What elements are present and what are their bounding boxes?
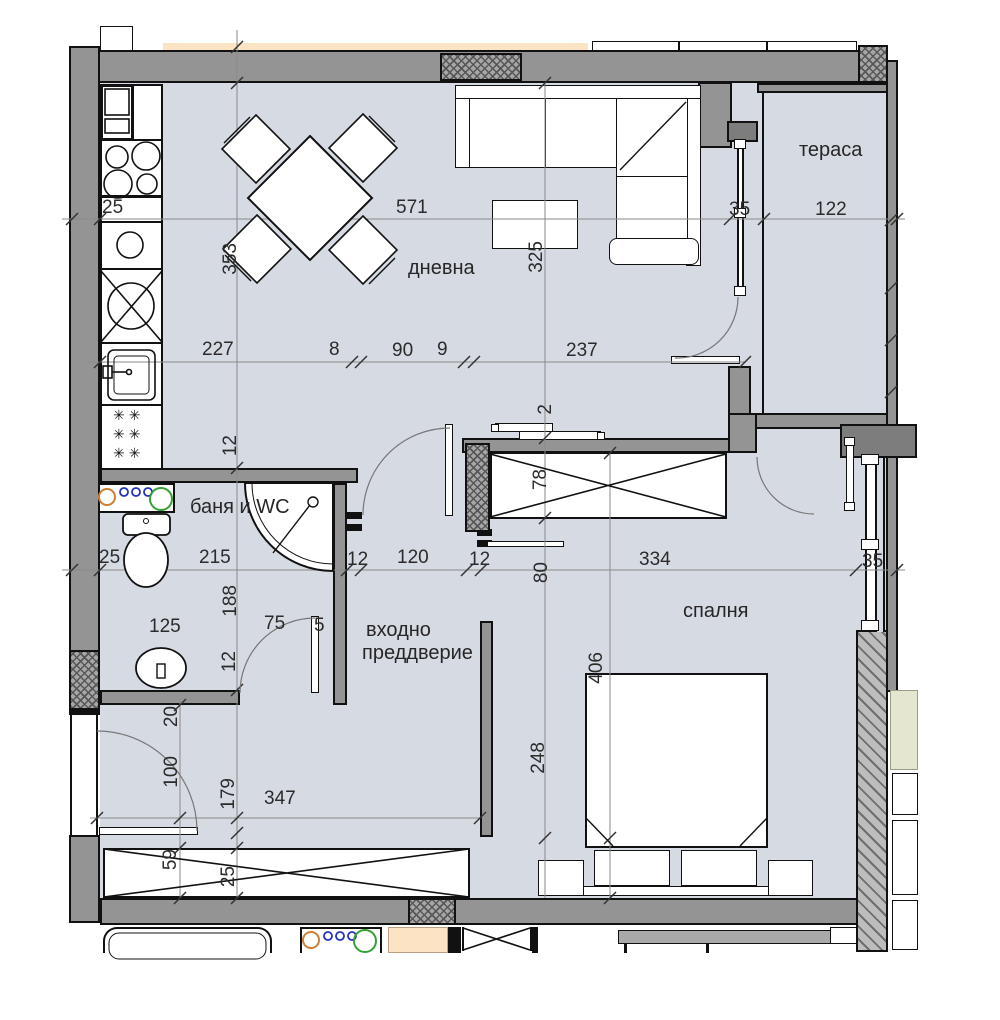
wall-bedroom-top	[462, 438, 757, 453]
lower-unit-wall	[532, 927, 538, 953]
dim-label: 12	[347, 550, 368, 569]
room-label-hall-2: преддверие	[362, 643, 473, 663]
room-label-living: дневна	[408, 258, 475, 278]
wall-left-upper	[69, 46, 100, 653]
slide-end-square	[597, 432, 605, 440]
bath-vanity	[98, 483, 175, 513]
dim-label: 59	[161, 849, 180, 870]
entry-frame-right	[96, 715, 98, 835]
dim-label: 215	[199, 548, 231, 567]
terrace-window-post	[734, 139, 746, 149]
hall-door-stop	[345, 524, 362, 531]
dim-label: 406	[587, 652, 606, 684]
bedroom-window-post	[861, 620, 879, 631]
wall-top-crosshatch	[440, 53, 522, 81]
wall-terrace-right	[886, 60, 898, 692]
dim-label: 325	[527, 241, 546, 273]
window-open-leaf	[846, 441, 854, 509]
dim-label: 120	[397, 548, 429, 567]
dim-label: 8	[329, 340, 340, 359]
bedroom-window-post	[861, 539, 879, 550]
dim-label: 188	[221, 585, 240, 617]
closet-crosshatch-pier	[465, 443, 490, 532]
wall-bottom	[100, 898, 860, 925]
dim-label: 571	[396, 198, 428, 217]
dim-label: 75	[264, 614, 285, 633]
wall-left-lower	[69, 835, 100, 923]
dim-label: 90	[392, 341, 413, 360]
counter-divider	[100, 268, 163, 270]
counter-divider	[100, 342, 163, 344]
dim-label: 12	[469, 550, 490, 569]
lower-unit-window	[830, 927, 857, 944]
terrace-door-pier	[728, 366, 751, 415]
lower-unit-divider	[624, 944, 627, 953]
dim-label: 2	[536, 404, 555, 415]
room-label-bath: баня и WC	[190, 497, 290, 517]
dim-label: 9	[437, 340, 448, 359]
right-unit-furniture	[892, 773, 918, 815]
terrace-door-leaf	[671, 356, 740, 364]
closet-sliding-door	[519, 431, 601, 440]
dim-label: 122	[815, 200, 847, 219]
bed-pillow	[681, 850, 757, 886]
hall-door-leaf	[445, 424, 453, 516]
sofa-seat	[545, 98, 618, 168]
lower-unit-bathtub	[103, 927, 272, 953]
bedroom-window-post	[861, 454, 879, 465]
fridge	[100, 84, 134, 141]
dim-label: 25	[102, 198, 123, 217]
lower-unit-floor	[388, 927, 448, 953]
dim-label: 5	[314, 616, 325, 635]
wall-connector	[728, 413, 757, 453]
dim-label: 25	[99, 548, 120, 567]
wall-terrace-top	[757, 83, 888, 93]
entry-jamb-top	[69, 708, 100, 715]
wall-bath-bottom	[100, 690, 240, 705]
radiator-icon: ✳✳✳✳✳✳	[113, 406, 144, 463]
window-leaf-end	[844, 502, 855, 511]
closet-box	[490, 452, 727, 519]
dim-label: 248	[529, 742, 548, 774]
wall-bottom-crosshatch	[408, 898, 456, 925]
right-unit-floor	[890, 690, 918, 770]
dim-label: 80	[532, 562, 551, 583]
dim-label: 25	[219, 866, 238, 887]
hall-door-stop	[345, 512, 362, 519]
wall-bedroom-left	[480, 621, 493, 837]
floor-plan: ✳✳✳✳✳✳	[0, 0, 1000, 1020]
dim-label: 334	[639, 550, 671, 569]
sofa-seat	[469, 98, 547, 168]
right-unit-furniture	[892, 900, 918, 950]
room-label-terrace: тераса	[799, 140, 862, 160]
lower-unit-vanity	[300, 927, 382, 953]
terrace-window-post	[734, 286, 746, 296]
hall-wardrobe	[103, 848, 470, 898]
room-label-bedroom: спалня	[683, 601, 749, 621]
dim-label: 12	[220, 651, 239, 672]
bedroom-window-sill-line	[883, 458, 885, 632]
dim-label: 35	[729, 200, 750, 219]
dim-label: 353	[221, 243, 240, 275]
bed-mattress	[585, 673, 768, 848]
dim-label: 100	[162, 756, 181, 788]
wall-left-crosshatch	[69, 650, 100, 715]
bed-pillow	[594, 850, 670, 886]
dim-label: 35	[862, 552, 883, 571]
right-unit-furniture	[892, 820, 918, 895]
counter-divider	[100, 221, 163, 223]
lower-unit-room	[462, 927, 532, 951]
wall-bath-top	[100, 468, 358, 483]
dim-label: 227	[202, 340, 234, 359]
dim-label: 347	[264, 789, 296, 808]
window-leaf-end	[844, 437, 855, 446]
sofa-chaise	[609, 238, 699, 265]
entry-door-leaf	[99, 827, 198, 835]
nightstand	[538, 860, 584, 896]
sofa-seat	[616, 176, 688, 240]
wall-topright-crosshatch	[858, 45, 888, 83]
terrace-floor-edge	[762, 92, 764, 414]
dim-label: 125	[149, 617, 181, 636]
entry-frame-left	[70, 715, 72, 835]
sofa-corner-seat	[616, 98, 688, 178]
dim-label: 12	[221, 435, 240, 456]
dim-label: 237	[566, 341, 598, 360]
slide-end-square	[491, 424, 499, 432]
lower-unit-wall	[448, 927, 461, 953]
lower-unit-wall-band	[618, 930, 858, 944]
dim-label: 78	[531, 469, 550, 490]
closet-front-line	[487, 541, 564, 547]
room-label-hall-1: входно	[366, 620, 431, 640]
lower-unit-divider	[706, 944, 709, 953]
wall-right-hatch-column	[856, 630, 888, 952]
dim-label: 179	[219, 778, 238, 810]
bed-headboard	[583, 886, 770, 896]
nightstand	[768, 860, 813, 896]
dim-label: 20	[162, 706, 181, 727]
